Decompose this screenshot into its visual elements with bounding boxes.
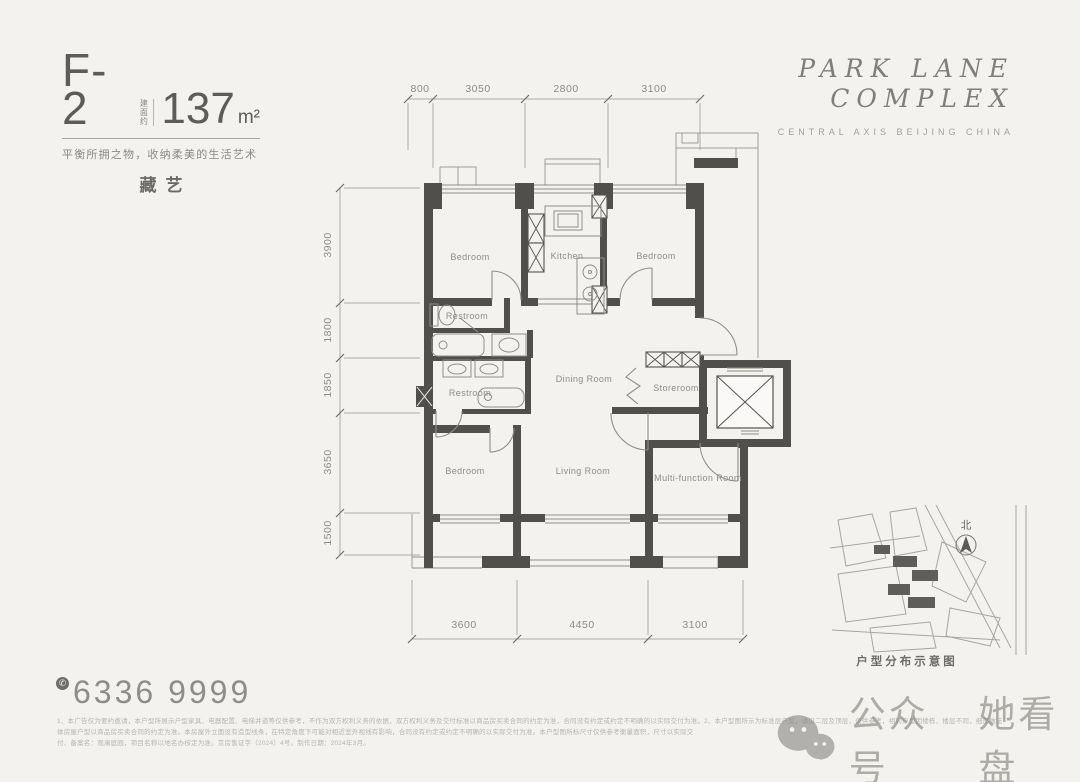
- unit-code: F-2: [62, 52, 131, 127]
- brand-line2: COMPLEX: [778, 84, 1014, 114]
- tagline: 平衡所拥之物，收纳柔美的生活艺术: [62, 146, 260, 162]
- dim-top-2: 2800: [553, 83, 578, 95]
- phone-number: 6336 9999: [73, 676, 251, 708]
- floor-plan-page: F-2 建面约 137 m² 平衡所拥之物，收纳柔美的生活艺术 藏艺 PARK …: [0, 0, 1080, 782]
- room-label-restroom-upper: Restroom: [446, 311, 488, 321]
- room-label-living-room: Living Room: [556, 466, 610, 476]
- watermark-prefix: 公众号: [849, 684, 951, 782]
- site-map-caption: 户型分布示意图: [856, 653, 958, 669]
- dim-top-0: 800: [410, 83, 429, 95]
- dim-bottom-0: 3600: [451, 619, 476, 631]
- exterior-thin-lines: [412, 133, 758, 568]
- room-label-storeroom: Storeroom: [653, 383, 699, 393]
- phone-block: ✆ 6336 9999: [56, 676, 251, 708]
- area-value: 137: [161, 91, 234, 127]
- north-label: 北: [961, 518, 972, 533]
- chat-bubbles-icon: [776, 706, 839, 770]
- dimension-ticks: [336, 95, 747, 643]
- dim-left-4: 1500: [322, 520, 334, 545]
- brand-block: PARK LANE COMPLEX CENTRAL AXIS BEIJING C…: [778, 54, 1014, 137]
- watermark-name: 她看盘: [978, 684, 1080, 782]
- dim-bottom-1: 4450: [569, 619, 594, 631]
- unit-row: F-2 建面约 137 m²: [62, 52, 260, 127]
- watermark: 公众号 她看盘: [776, 702, 1080, 774]
- brand-line1: PARK LANE: [778, 54, 1014, 84]
- phone-icon: ✆: [56, 677, 69, 690]
- dim-top-1: 3050: [465, 83, 490, 95]
- room-label-kitchen: Kitchen: [551, 251, 584, 261]
- room-label-restroom-lower: Restroom: [449, 388, 491, 398]
- dim-left-3: 3650: [322, 449, 334, 474]
- elevator-shaft: [699, 360, 791, 447]
- header-divider: [62, 138, 260, 139]
- site-buildings: [874, 545, 938, 608]
- dim-left-0: 3900: [322, 232, 334, 257]
- room-label-multi-function-room: Multi-function Room: [654, 473, 742, 483]
- dim-bottom-2: 3100: [682, 619, 707, 631]
- area-unit: m²: [238, 108, 260, 127]
- dim-left-1: 1800: [322, 317, 334, 342]
- dim-top-3: 3100: [641, 83, 666, 95]
- room-label-bedroom-bottom: Bedroom: [445, 466, 484, 476]
- north-compass: [956, 535, 976, 555]
- area-prefix: 建面约: [140, 99, 155, 126]
- room-label-dining-room: Dining Room: [556, 374, 612, 384]
- dim-left-2: 1850: [322, 372, 334, 397]
- room-label-bedroom-top-left: Bedroom: [450, 252, 489, 262]
- brand-subtitle: CENTRAL AXIS BEIJING CHINA: [778, 127, 1014, 137]
- theme-name: 藏艺: [62, 171, 260, 196]
- room-label-bedroom-top-right: Bedroom: [636, 251, 675, 261]
- site-map: [830, 505, 1026, 655]
- header-block: F-2 建面约 137 m² 平衡所拥之物，收纳柔美的生活艺术 藏艺: [62, 52, 260, 196]
- dimension-lines: [340, 99, 743, 639]
